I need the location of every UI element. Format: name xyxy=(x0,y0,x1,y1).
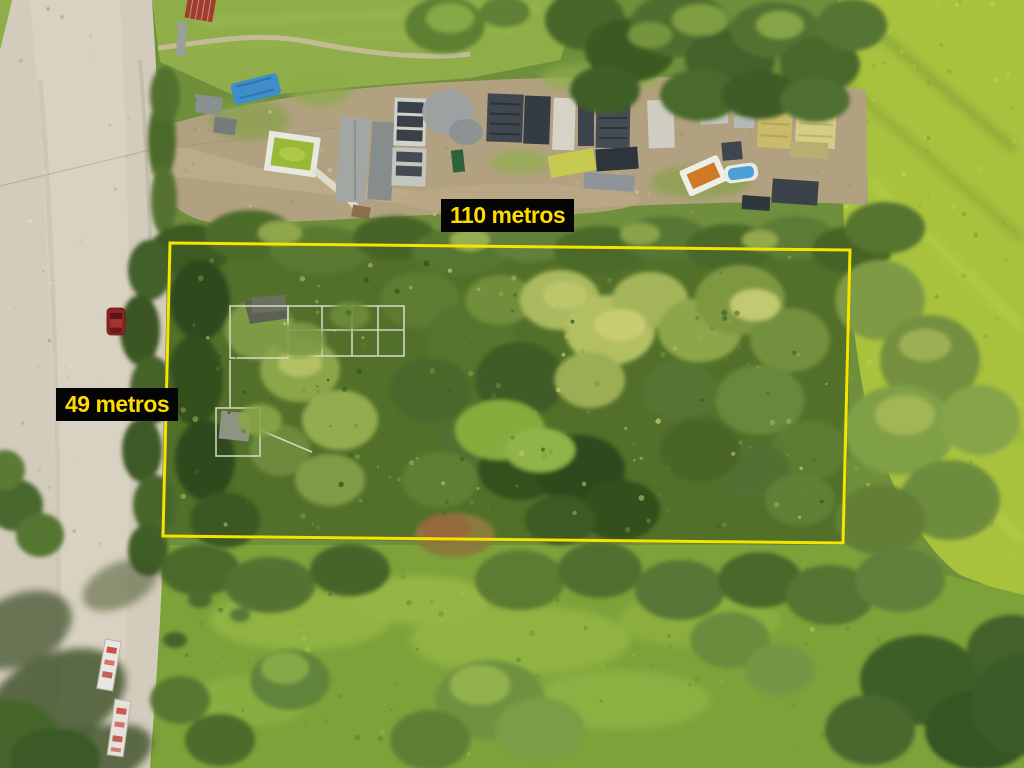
white-container-doors xyxy=(393,97,427,146)
frontage-dimension-label: 110 metros xyxy=(441,199,574,232)
side-dimension-label: 49 metros xyxy=(56,388,178,421)
red-car xyxy=(107,308,125,335)
aerial-photo-canvas xyxy=(0,0,1024,768)
aerial-photo: 110 metros 49 metros xyxy=(0,0,1024,768)
